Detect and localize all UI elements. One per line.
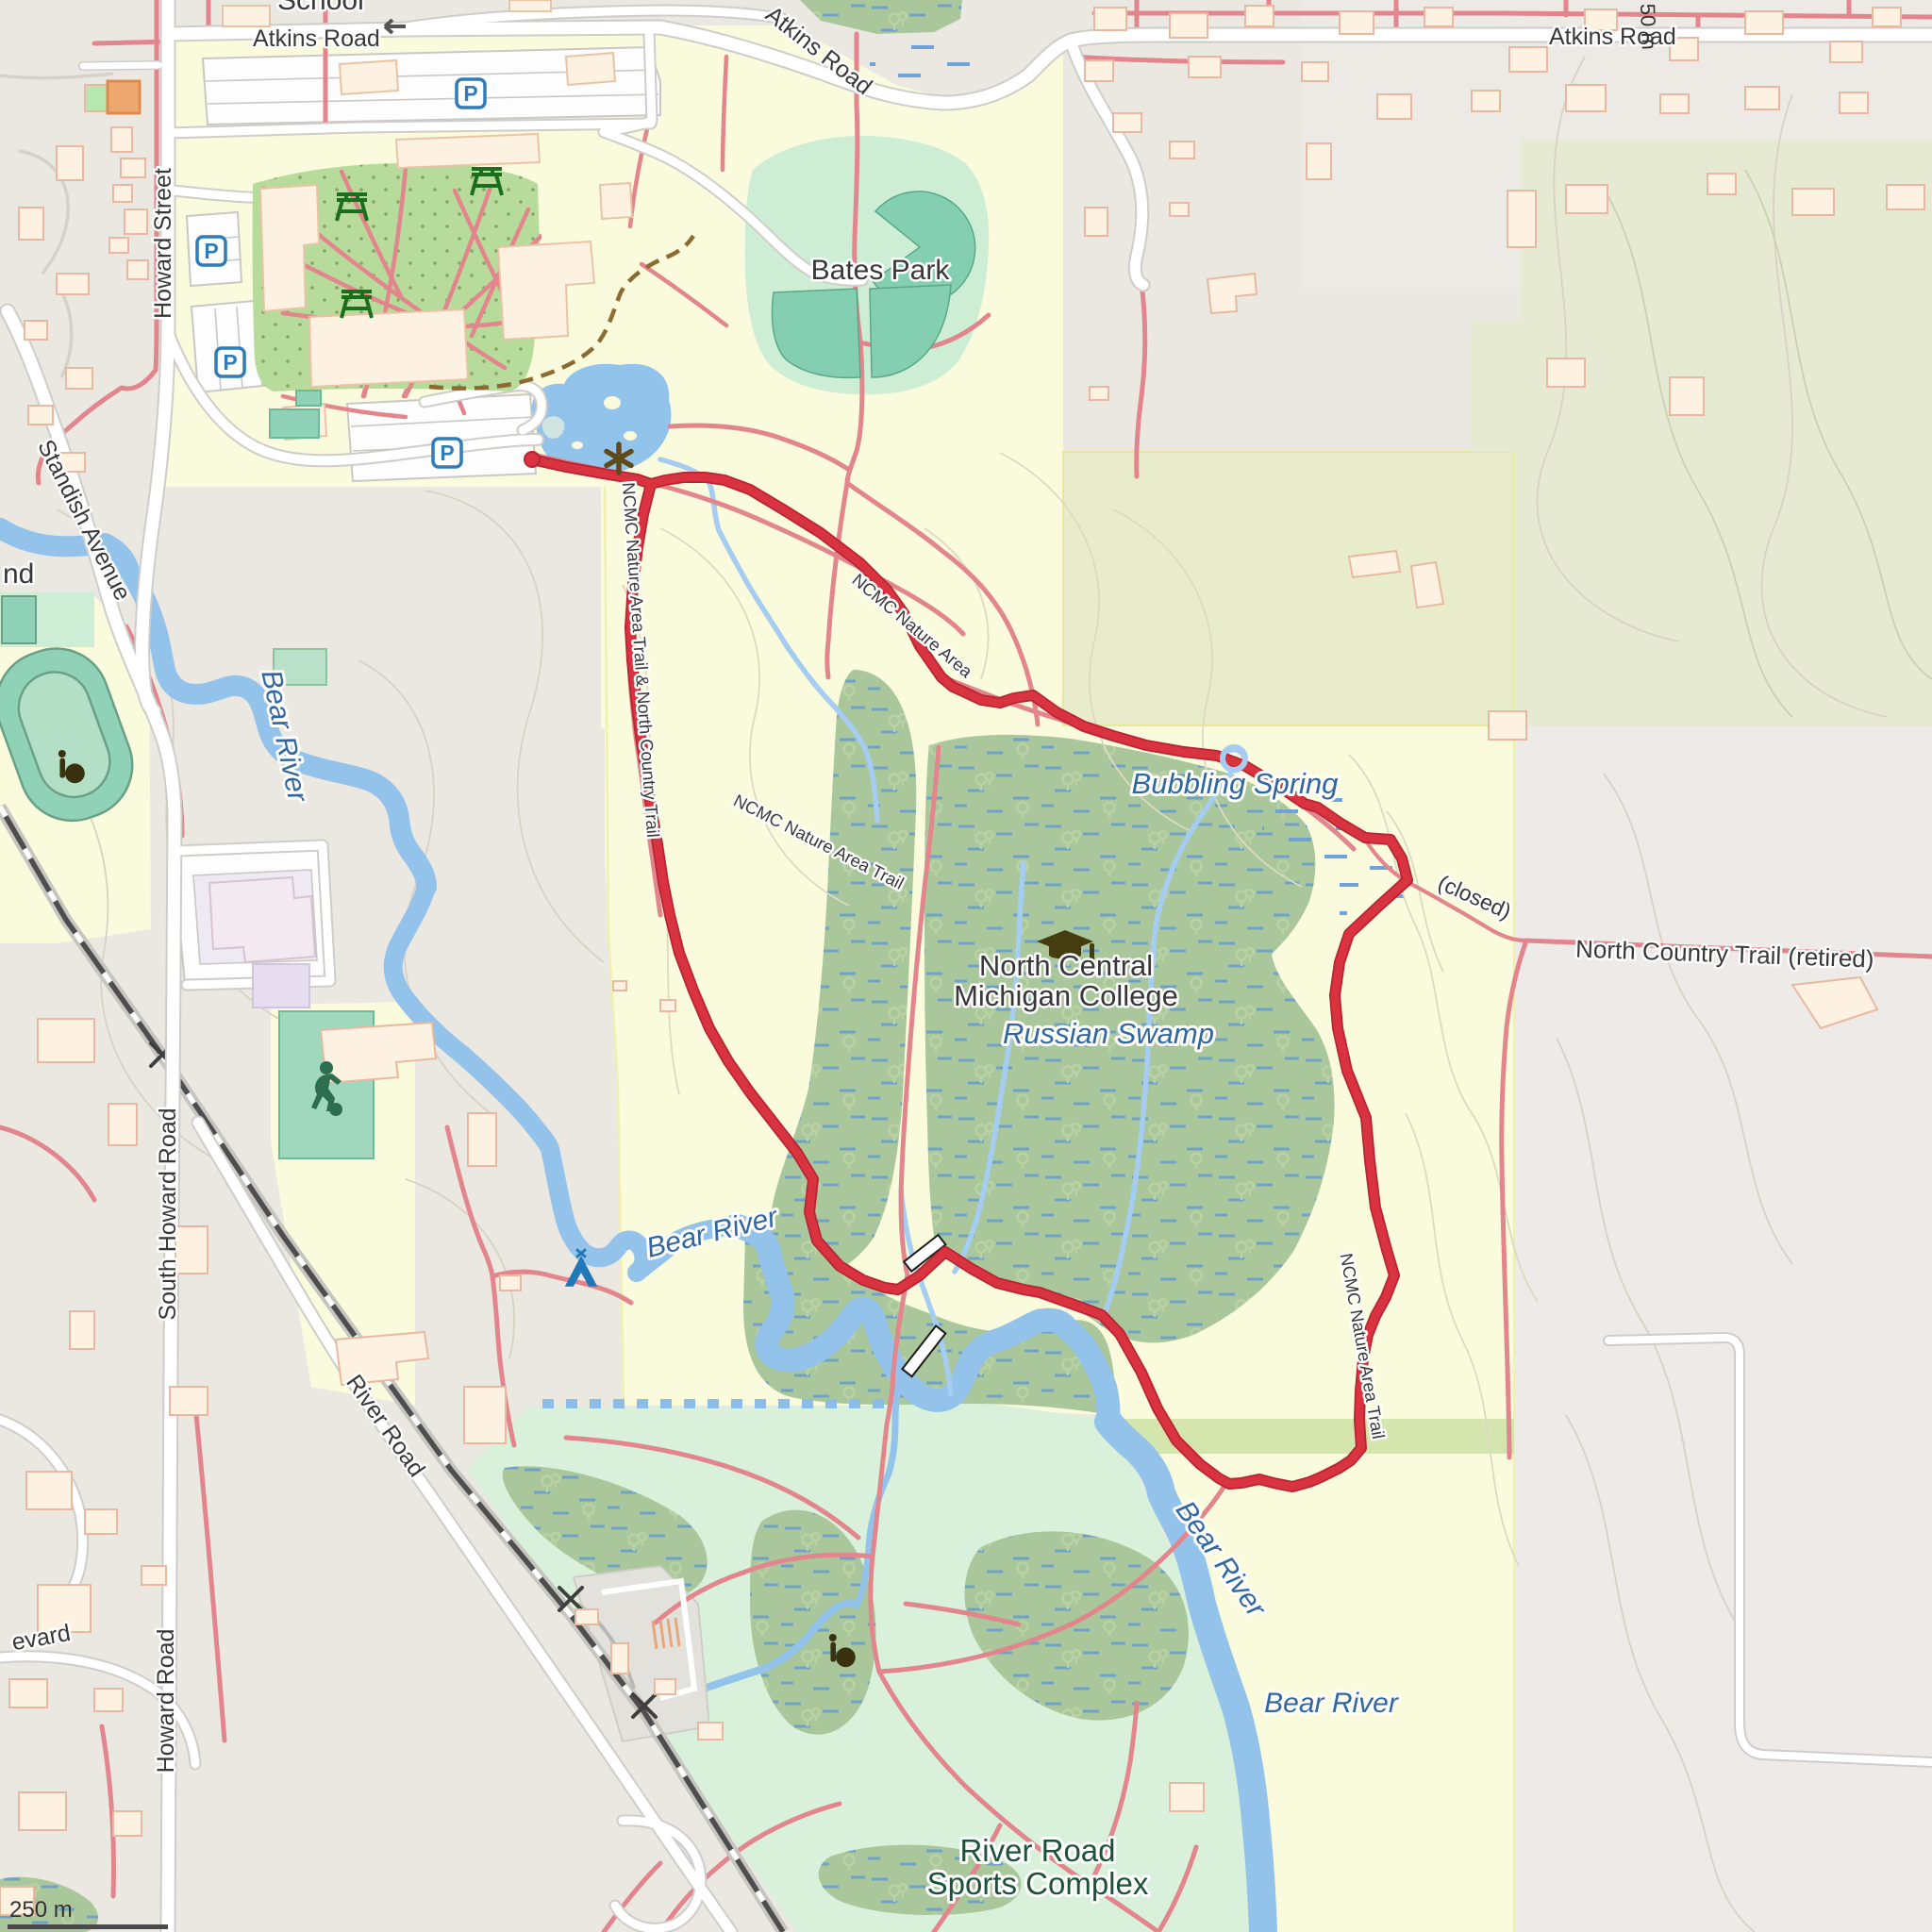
- svg-text:South Howard Road: South Howard Road: [155, 1108, 181, 1320]
- svg-text:Sports Complex: Sports Complex: [927, 1866, 1149, 1901]
- svg-text:Russian Swamp: Russian Swamp: [1003, 1017, 1214, 1050]
- svg-text:50 m: 50 m: [1636, 3, 1661, 50]
- svg-text:P: P: [223, 350, 237, 375]
- svg-text:250 m: 250 m: [9, 1897, 73, 1923]
- svg-text:River Road: River Road: [959, 1833, 1115, 1868]
- svg-text:P: P: [463, 81, 477, 106]
- svg-text:P: P: [440, 441, 454, 465]
- svg-text:Bear River: Bear River: [1264, 1688, 1399, 1719]
- svg-text:North Central: North Central: [979, 949, 1153, 982]
- svg-text:Bubbling Spring: Bubbling Spring: [1132, 767, 1339, 800]
- svg-text:Michigan College: Michigan College: [954, 979, 1178, 1012]
- svg-text:Bates Park: Bates Park: [811, 255, 951, 286]
- svg-text:Howard Road: Howard Road: [153, 1629, 179, 1774]
- svg-text:Atkins Road: Atkins Road: [253, 25, 380, 52]
- svg-text:nd: nd: [3, 558, 34, 590]
- svg-text:Howard Street: Howard Street: [150, 168, 176, 319]
- svg-text:P: P: [204, 239, 218, 263]
- svg-text:School: School: [277, 0, 364, 16]
